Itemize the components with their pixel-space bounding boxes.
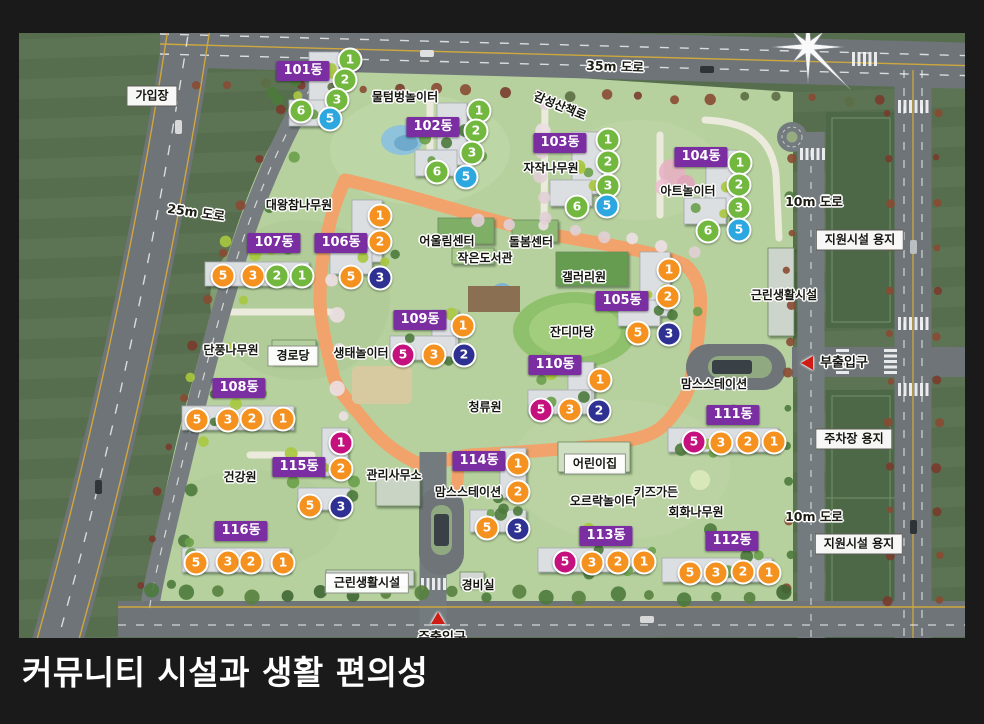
zone-label: 경로당 — [267, 346, 318, 367]
facility-marker-orange-1: 1 — [506, 452, 531, 477]
facility-marker-cyan-5: 5 — [454, 165, 479, 190]
facility-label: 생태놀이터 — [333, 347, 388, 359]
facility-marker-orange-1: 1 — [762, 430, 787, 455]
facility-marker-orange-5: 5 — [185, 408, 210, 433]
facility-label: 잔디마당 — [550, 326, 594, 338]
facility-marker-cyan-5: 5 — [318, 107, 343, 132]
facility-marker-navy-3: 3 — [329, 495, 354, 520]
zone-label: 가입장 — [126, 86, 177, 107]
facility-label: 근린생활시설 — [751, 289, 817, 301]
screenshot-stage: 101동102동103동104동105동106동107동108동109동110동… — [0, 0, 984, 724]
facility-label: 작은도서관 — [457, 252, 512, 264]
facility-marker-green-6: 6 — [565, 195, 590, 220]
road-label: 25m 도로 — [167, 203, 226, 223]
facility-marker-magenta-5: 5 — [553, 550, 578, 575]
building-label-105: 105동 — [595, 291, 648, 311]
facility-label: 오르락놀이터 — [570, 495, 636, 507]
facility-marker-orange-5: 5 — [626, 321, 651, 346]
facility-marker-green-2: 2 — [596, 150, 621, 175]
facility-marker-orange-2: 2 — [368, 230, 393, 255]
facility-marker-orange-1: 1 — [451, 314, 476, 339]
facility-label: 대왕참나무원 — [266, 199, 332, 211]
facility-marker-navy-2: 2 — [587, 399, 612, 424]
facility-marker-green-6: 6 — [696, 219, 721, 244]
facility-marker-navy-3: 3 — [368, 266, 393, 291]
building-label-103: 103동 — [533, 133, 586, 153]
facility-marker-orange-2: 2 — [506, 480, 531, 505]
facility-marker-orange-3: 3 — [216, 550, 241, 575]
zone-label: 지원시설 용지 — [816, 230, 904, 251]
building-label-106: 106동 — [314, 233, 367, 253]
facility-marker-orange-1: 1 — [271, 407, 296, 432]
facility-label: 건강원 — [223, 471, 256, 483]
facility-marker-magenta-1: 1 — [329, 431, 354, 456]
facility-marker-orange-3: 3 — [580, 551, 605, 576]
building-label-107: 107동 — [247, 233, 300, 253]
facility-marker-orange-3: 3 — [241, 264, 266, 289]
zone-label: 지원시설 용지 — [815, 534, 903, 555]
main-entrance-arrow-icon — [431, 612, 445, 624]
facility-marker-orange-1: 1 — [632, 550, 657, 575]
facility-marker-green-1: 1 — [290, 264, 315, 289]
facility-marker-navy-3: 3 — [657, 322, 682, 347]
facility-marker-orange-5: 5 — [339, 265, 364, 290]
facility-label: 감성산책로 — [532, 90, 588, 122]
facility-label: 회화나무원 — [668, 506, 723, 518]
facility-marker-navy-2: 2 — [452, 343, 477, 368]
road-label: 35m 도로 — [586, 60, 644, 75]
building-label-111: 111동 — [706, 405, 759, 425]
building-label-109: 109동 — [393, 310, 446, 330]
sub-entrance-arrow-icon — [801, 356, 813, 370]
facility-marker-orange-2: 2 — [606, 550, 631, 575]
facility-label: 자작나무원 — [523, 162, 578, 174]
facility-marker-orange-2: 2 — [656, 285, 681, 310]
facility-marker-cyan-5: 5 — [595, 194, 620, 219]
facility-marker-orange-1: 1 — [588, 368, 613, 393]
facility-marker-orange-3: 3 — [709, 431, 734, 456]
facility-marker-green-2: 2 — [265, 264, 290, 289]
facility-marker-orange-5: 5 — [184, 551, 209, 576]
facility-label: 단풍나무원 — [203, 344, 258, 356]
facility-label: 청류원 — [468, 401, 501, 413]
map-label-overlay: 101동102동103동104동105동106동107동108동109동110동… — [19, 33, 965, 638]
facility-marker-orange-1: 1 — [271, 551, 296, 576]
entrance-label: 부출입구 — [820, 357, 868, 370]
facility-label: 관리사무소 — [366, 469, 421, 481]
building-label-116: 116동 — [214, 521, 267, 541]
facility-marker-orange-2: 2 — [329, 457, 354, 482]
site-plan-map: 101동102동103동104동105동106동107동108동109동110동… — [19, 33, 965, 638]
building-label-108: 108동 — [212, 378, 265, 398]
building-label-110: 110동 — [528, 355, 581, 375]
facility-label: 갤러리원 — [562, 271, 606, 283]
building-label-112: 112동 — [705, 531, 758, 551]
facility-marker-green-6: 6 — [289, 99, 314, 124]
building-label-102: 102동 — [406, 117, 459, 137]
facility-marker-orange-5: 5 — [475, 516, 500, 541]
facility-label: 어울림센터 — [419, 235, 474, 247]
facility-label: 물텀벙놀이터 — [372, 91, 438, 103]
facility-marker-orange-5: 5 — [298, 494, 323, 519]
facility-marker-orange-5: 5 — [678, 561, 703, 586]
road-label: 10m 도로 — [785, 196, 843, 209]
facility-marker-orange-2: 2 — [239, 550, 264, 575]
road-label: 10m 도로 — [785, 511, 843, 524]
facility-marker-orange-3: 3 — [216, 408, 241, 433]
facility-marker-orange-1: 1 — [368, 204, 393, 229]
zone-label: 어린이집 — [564, 454, 626, 475]
building-label-113: 113동 — [579, 526, 632, 546]
facility-marker-orange-1: 1 — [657, 258, 682, 283]
zone-label: 근린생활시설 — [325, 573, 409, 594]
facility-marker-cyan-5: 5 — [727, 218, 752, 243]
facility-marker-green-6: 6 — [425, 160, 450, 185]
facility-marker-orange-1: 1 — [757, 561, 782, 586]
building-label-114: 114동 — [452, 451, 505, 471]
facility-label: 맘스스테이션 — [681, 378, 747, 390]
facility-marker-orange-3: 3 — [422, 343, 447, 368]
building-label-104: 104동 — [674, 147, 727, 167]
facility-label: 키즈가든 — [634, 486, 678, 498]
facility-marker-magenta-5: 5 — [682, 430, 707, 455]
facility-marker-green-3: 3 — [460, 141, 485, 166]
facility-marker-orange-3: 3 — [704, 561, 729, 586]
zone-label: 주차장 용지 — [815, 429, 892, 450]
facility-marker-green-2: 2 — [727, 173, 752, 198]
facility-marker-orange-2: 2 — [731, 560, 756, 585]
facility-label: 돌봄센터 — [509, 236, 553, 248]
facility-marker-orange-2: 2 — [736, 430, 761, 455]
building-label-101: 101동 — [276, 61, 329, 81]
facility-marker-magenta-5: 5 — [391, 343, 416, 368]
facility-marker-orange-3: 3 — [558, 398, 583, 423]
facility-marker-orange-2: 2 — [240, 407, 265, 432]
facility-marker-green-2: 2 — [464, 119, 489, 144]
facility-label: 아트놀이터 — [660, 185, 715, 197]
building-label-115: 115동 — [272, 457, 325, 477]
facility-label: 맘스스테이션 — [435, 486, 501, 498]
page-title: 커뮤니티 시설과 생활 편의성 — [22, 646, 428, 694]
facility-marker-orange-5: 5 — [211, 264, 236, 289]
facility-marker-magenta-5: 5 — [529, 398, 554, 423]
facility-label: 경비실 — [461, 579, 494, 591]
entrance-label: 주출입구 — [418, 632, 466, 639]
facility-marker-navy-3: 3 — [506, 517, 531, 542]
